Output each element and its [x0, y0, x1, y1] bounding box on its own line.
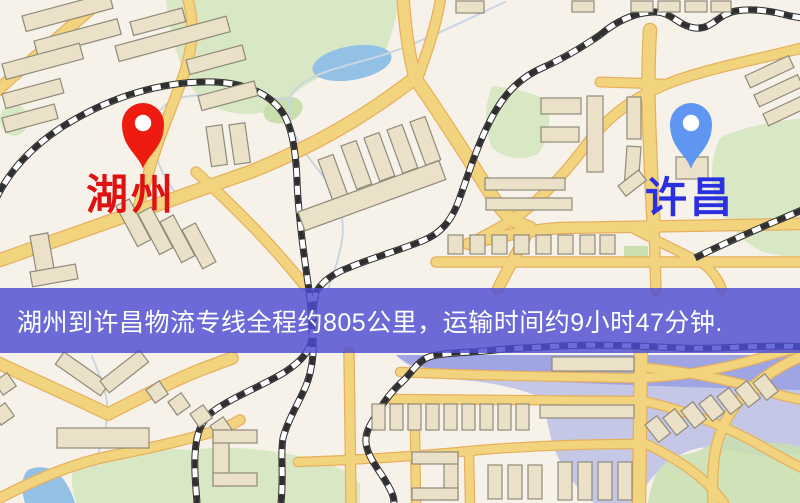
map-canvas — [0, 0, 800, 503]
origin-label: 湖州 — [86, 174, 176, 216]
map-image: 湖州 许昌 湖州到许昌物流专线全程约805公里，运输时间约9小时47分钟. — [0, 0, 800, 503]
destination-label: 许昌 — [645, 177, 735, 219]
route-info-text: 湖州到许昌物流专线全程约805公里，运输时间约9小时47分钟. — [0, 303, 723, 339]
route-info-banner: 湖州到许昌物流专线全程约805公里，运输时间约9小时47分钟. — [0, 288, 800, 353]
